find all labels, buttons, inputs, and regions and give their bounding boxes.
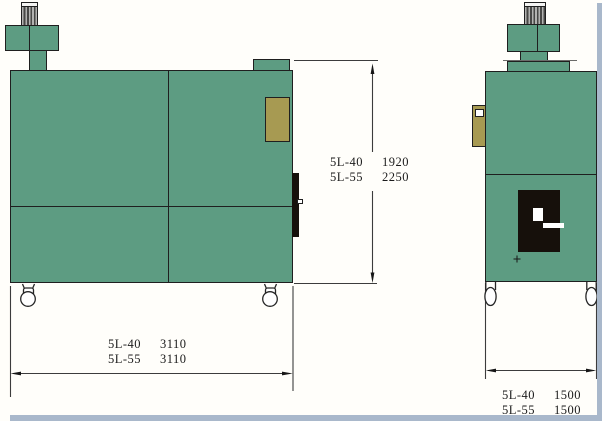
front-door-handle	[297, 199, 303, 204]
side-body-horizontal-seam	[486, 174, 596, 175]
front-control-box	[265, 97, 290, 142]
dim-value-label: 1920	[382, 155, 409, 170]
dim-row: 5L-40 3110	[108, 337, 187, 352]
dim-value-label: 1500	[554, 388, 581, 403]
technical-drawing-canvas: 5L-40 3110 5L-55 3110 5L-40 1920 5L-55 2…	[0, 0, 602, 421]
front-body-vertical-seam	[168, 71, 169, 282]
front-hopper-neck	[29, 50, 47, 72]
window-edge-bottom	[10, 415, 602, 421]
dim-value-label: 2250	[382, 170, 409, 185]
front-motor-block-seam	[29, 26, 30, 50]
dim-model-label: 5L-55	[330, 170, 370, 185]
dim-front-width: 5L-40 3110 5L-55 3110	[108, 337, 187, 367]
dim-model-label: 5L-40	[502, 388, 542, 403]
dim-model-label: 5L-55	[108, 352, 148, 367]
side-motor-block	[507, 24, 560, 52]
front-machine-body	[10, 70, 293, 283]
dim-model-label: 5L-40	[330, 155, 370, 170]
side-motor-block-seam	[537, 25, 538, 51]
dim-row: 5L-55 2250	[330, 170, 409, 185]
dim-value-label: 3110	[160, 352, 187, 367]
front-caster	[21, 284, 36, 306]
side-panel-lever	[543, 223, 564, 228]
dim-model-label: 5L-40	[108, 337, 148, 352]
front-body-horizontal-seam	[11, 206, 292, 207]
dim-row: 5L-40 1920	[330, 155, 409, 170]
window-edge-right	[597, 3, 602, 421]
dim-row: 5L-55 3110	[108, 352, 187, 367]
front-door-rail	[292, 173, 299, 237]
dim-value-label: 3110	[160, 337, 187, 352]
front-motor-fins	[21, 6, 38, 26]
side-motor-fins	[524, 6, 546, 25]
side-panel-opening	[518, 190, 560, 252]
side-panel-slot	[533, 208, 543, 221]
side-casters	[485, 282, 597, 306]
dim-side-width: 5L-40 1500 5L-55 1500	[502, 388, 581, 418]
dim-row: 5L-40 1500	[502, 388, 581, 403]
front-motor-block	[5, 25, 59, 51]
side-control-window	[475, 109, 484, 117]
side-flange-rule	[503, 60, 577, 61]
front-caster	[263, 284, 278, 306]
dim-height: 5L-40 1920 5L-55 2250	[330, 155, 409, 185]
